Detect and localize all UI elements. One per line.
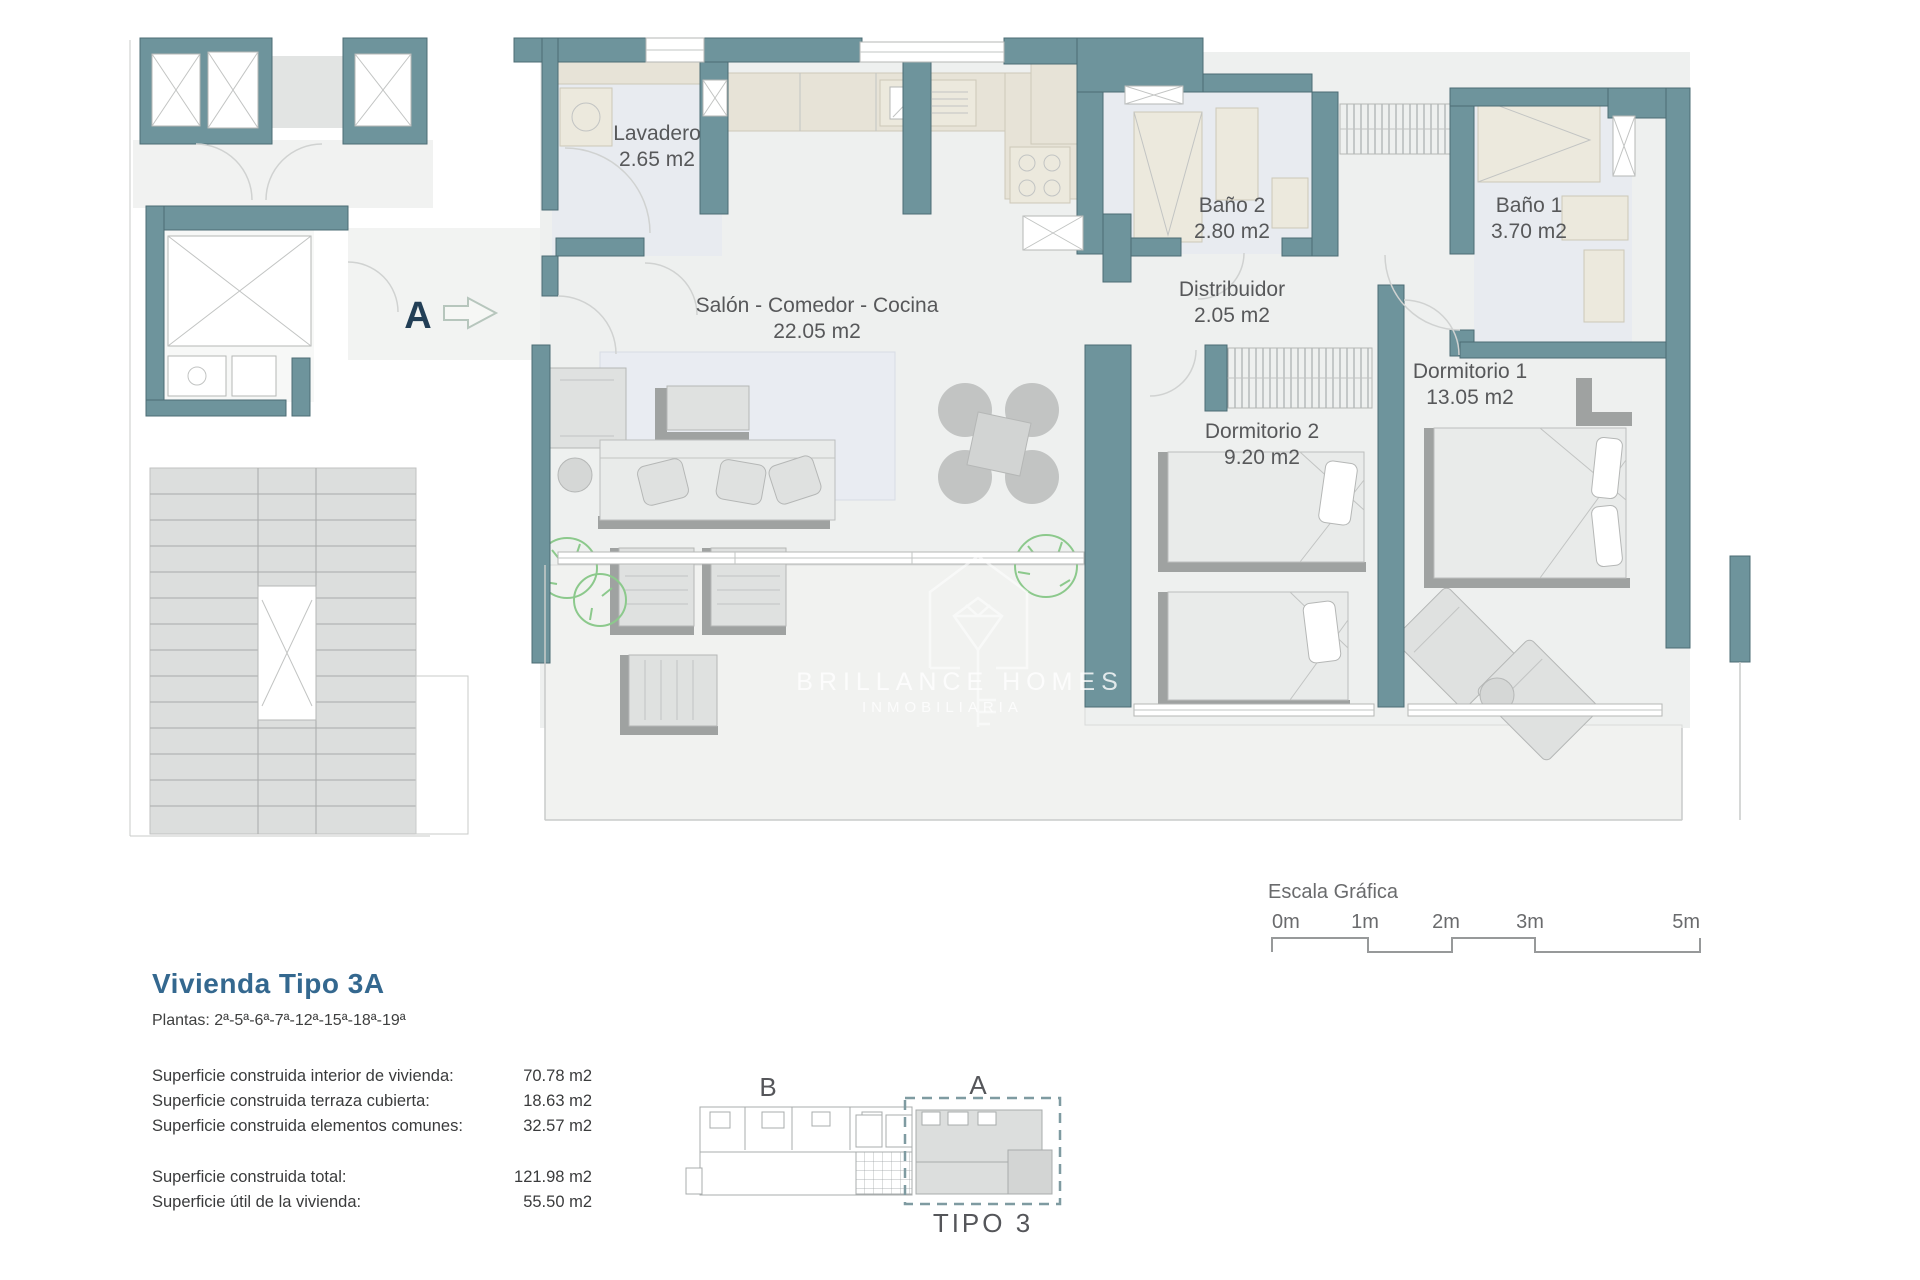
keyplan-label-a: A	[969, 1070, 987, 1100]
unit-title: Vivienda Tipo 3A	[152, 968, 592, 1000]
scale-tick-0m: 0m	[1272, 911, 1300, 933]
terrace-bench	[629, 655, 717, 726]
room-area-salon: 22.05 m2	[773, 320, 861, 343]
surface-value: 32.57 m2	[502, 1114, 592, 1139]
floors-list: Plantas: 2ª-5ª-6ª-7ª-12ª-15ª-18ª-19ª	[152, 1012, 592, 1030]
scale-tick-3m: 3m	[1516, 911, 1544, 933]
washing-machine	[560, 88, 612, 146]
bano1-wc	[1584, 250, 1624, 322]
key-plan: B A TIPO 3	[686, 1070, 1060, 1238]
lavadero-counter	[558, 62, 702, 84]
bano1-vanity	[1562, 196, 1628, 240]
info-block: Vivienda Tipo 3A Plantas: 2ª-5ª-6ª-7ª-12…	[152, 968, 592, 1215]
table-row: Superficie construida total: 121.98 m2	[152, 1165, 592, 1190]
surface-table: Superficie construida interior de vivien…	[152, 1064, 592, 1215]
floor-plan-page: { "plan": { "entry_label": "A", "rooms":…	[0, 0, 1920, 1280]
table-row: Superficie útil de la vivienda: 55.50 m2	[152, 1190, 592, 1215]
surface-label: Superficie construida total:	[152, 1165, 346, 1190]
room-area-bano1: 3.70 m2	[1491, 220, 1567, 243]
scale-title: Escala Gráfica	[1268, 881, 1399, 903]
room-label-dormitorio2: Dormitorio 2	[1205, 420, 1319, 443]
surface-value: 70.78 m2	[502, 1064, 592, 1089]
scale-tick-5m: 5m	[1672, 911, 1700, 933]
table-row: Superficie construida elementos comunes:…	[152, 1114, 592, 1139]
side-table	[558, 458, 592, 492]
scale-bar-line	[1272, 938, 1700, 952]
room-area-lavadero: 2.65 m2	[619, 148, 695, 171]
core-lobby-strip	[272, 56, 343, 128]
pillow	[1302, 600, 1341, 663]
entry-label: A	[404, 295, 431, 337]
bano2-wc	[1272, 178, 1308, 228]
room-area-dormitorio1: 13.05 m2	[1426, 386, 1514, 409]
entry-hall-floor	[348, 228, 540, 360]
room-label-dormitorio1: Dormitorio 1	[1413, 360, 1527, 383]
room-label-distribuidor: Distribuidor	[1179, 278, 1285, 301]
room-label-bano1: Baño 1	[1496, 194, 1563, 217]
cooktop	[1010, 147, 1070, 203]
bano2-vanity	[1216, 108, 1258, 200]
surface-value: 121.98 m2	[502, 1165, 592, 1190]
watermark-name: BRILLANCE HOMES	[796, 668, 1124, 696]
surface-value: 55.50 m2	[502, 1190, 592, 1215]
core-fixture	[232, 356, 276, 396]
core-fixture	[168, 356, 226, 396]
surface-label: Superficie útil de la vivienda:	[152, 1190, 361, 1215]
surface-value: 18.63 m2	[502, 1089, 592, 1114]
keyplan-unit-a	[905, 1098, 1060, 1204]
core-hall-floor	[133, 140, 433, 208]
scale-tick-2m: 2m	[1432, 911, 1460, 933]
room-label-lavadero: Lavadero	[613, 122, 701, 145]
pillow	[1591, 505, 1623, 567]
keyplan-caption: TIPO 3	[933, 1208, 1033, 1238]
surface-label: Superficie construida interior de vivien…	[152, 1064, 454, 1089]
pillow	[1591, 437, 1623, 499]
bano1-shower	[1478, 98, 1600, 182]
room-area-bano2: 2.80 m2	[1194, 220, 1270, 243]
kitchen-tall-unit	[1031, 64, 1077, 144]
room-label-bano2: Baño 2	[1199, 194, 1266, 217]
keyplan-label-b: B	[759, 1072, 776, 1102]
stair-landing	[416, 676, 468, 834]
watermark-subtitle: INMOBILIARIA	[862, 699, 1023, 716]
table-row: Superficie construida terraza cubierta: …	[152, 1089, 592, 1114]
table-spacer	[152, 1139, 592, 1165]
bano2-shower	[1134, 112, 1202, 242]
room-area-distribuidor: 2.05 m2	[1194, 304, 1270, 327]
table-row: Superficie construida interior de vivien…	[152, 1064, 592, 1089]
room-area-dormitorio2: 9.20 m2	[1224, 446, 1300, 469]
coffee-table	[667, 386, 749, 430]
room-label-salon: Salón - Comedor - Cocina	[696, 294, 939, 317]
surface-label: Superficie construida terraza cubierta:	[152, 1089, 430, 1114]
surface-label: Superficie construida elementos comunes:	[152, 1114, 463, 1139]
sofa-cushion	[715, 458, 767, 505]
scale-bar: Escala Gráfica 0m 1m 2m 3m 5m	[1268, 881, 1700, 952]
scale-tick-1m: 1m	[1351, 911, 1379, 933]
